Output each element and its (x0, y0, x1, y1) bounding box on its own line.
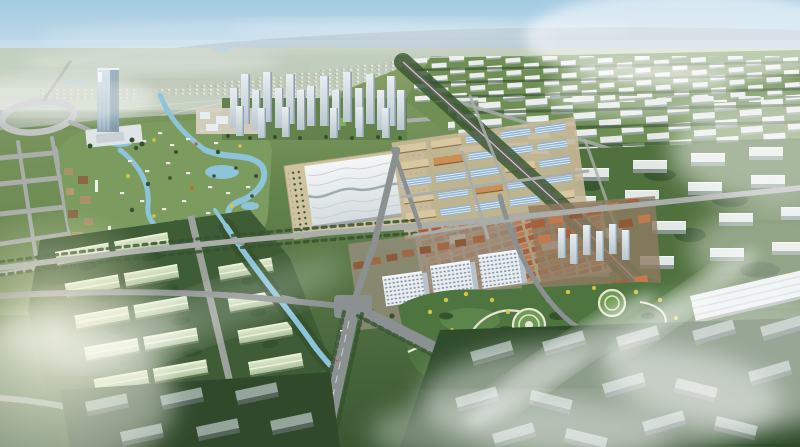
aerial-city-rendering (0, 0, 800, 447)
rendering-canvas (0, 0, 800, 447)
